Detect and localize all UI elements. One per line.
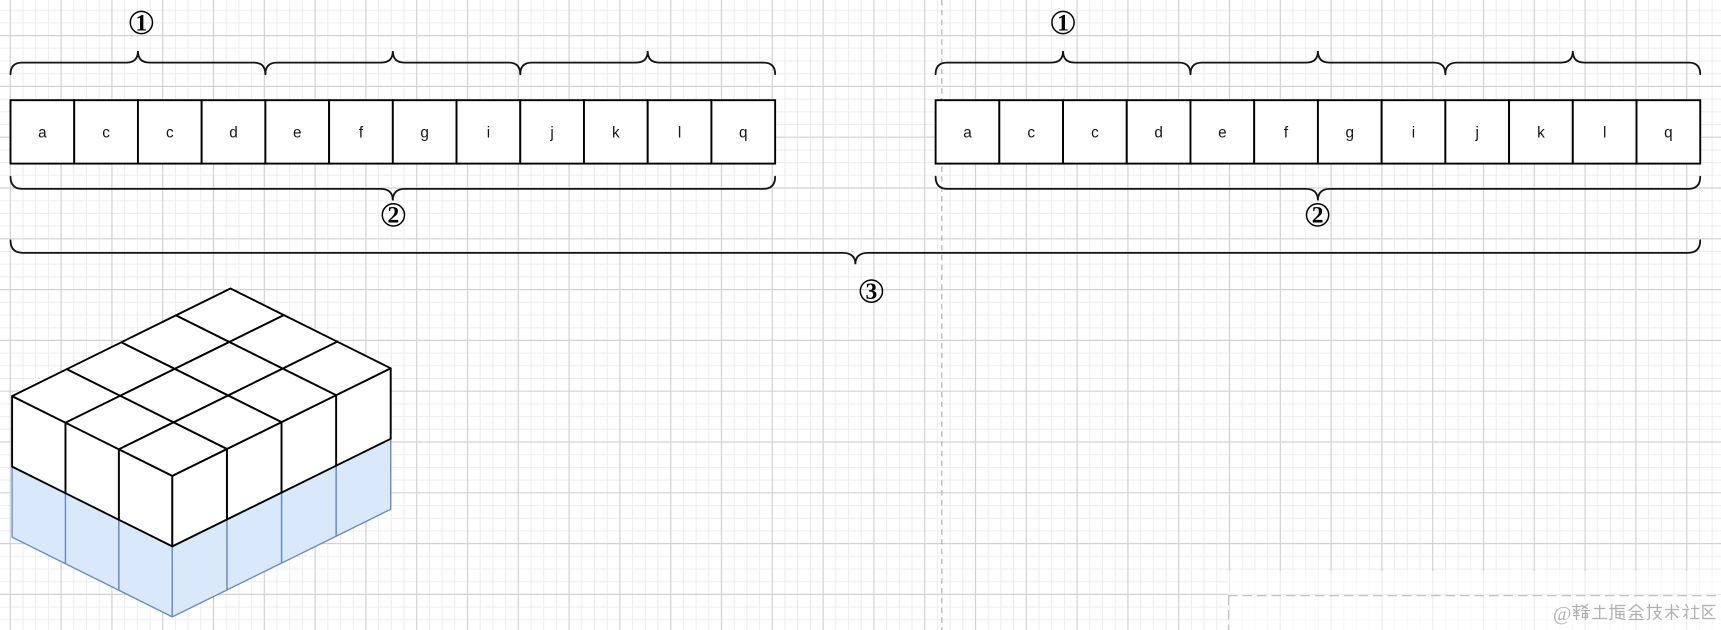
svg-text:d: d: [1154, 124, 1163, 141]
svg-text:g: g: [1346, 124, 1355, 141]
svg-text:q: q: [1664, 124, 1673, 141]
svg-text:a: a: [963, 124, 972, 141]
svg-text:f: f: [1284, 124, 1289, 141]
svg-text:f: f: [359, 124, 364, 141]
svg-text:i: i: [1412, 124, 1415, 141]
svg-text:a: a: [38, 124, 47, 141]
svg-text:2: 2: [1312, 203, 1324, 229]
svg-text:2: 2: [388, 203, 400, 229]
svg-text:j: j: [1475, 124, 1479, 141]
svg-text:k: k: [1537, 124, 1545, 141]
svg-text:d: d: [229, 124, 238, 141]
svg-text:l: l: [678, 124, 681, 141]
svg-text:c: c: [1027, 124, 1035, 141]
svg-text:j: j: [549, 124, 553, 141]
svg-text:1: 1: [1057, 10, 1069, 36]
svg-text:c: c: [166, 124, 174, 141]
svg-text:i: i: [487, 124, 490, 141]
svg-text:@: @: [1553, 603, 1571, 625]
svg-text:q: q: [739, 124, 748, 141]
svg-text:c: c: [1091, 124, 1099, 141]
svg-text:1: 1: [136, 10, 148, 36]
svg-text:g: g: [420, 124, 429, 141]
svg-text:l: l: [1603, 124, 1606, 141]
svg-text:c: c: [102, 124, 110, 141]
svg-text:e: e: [293, 124, 302, 141]
svg-text:e: e: [1218, 124, 1227, 141]
svg-text:3: 3: [866, 279, 878, 305]
svg-text:k: k: [612, 124, 620, 141]
